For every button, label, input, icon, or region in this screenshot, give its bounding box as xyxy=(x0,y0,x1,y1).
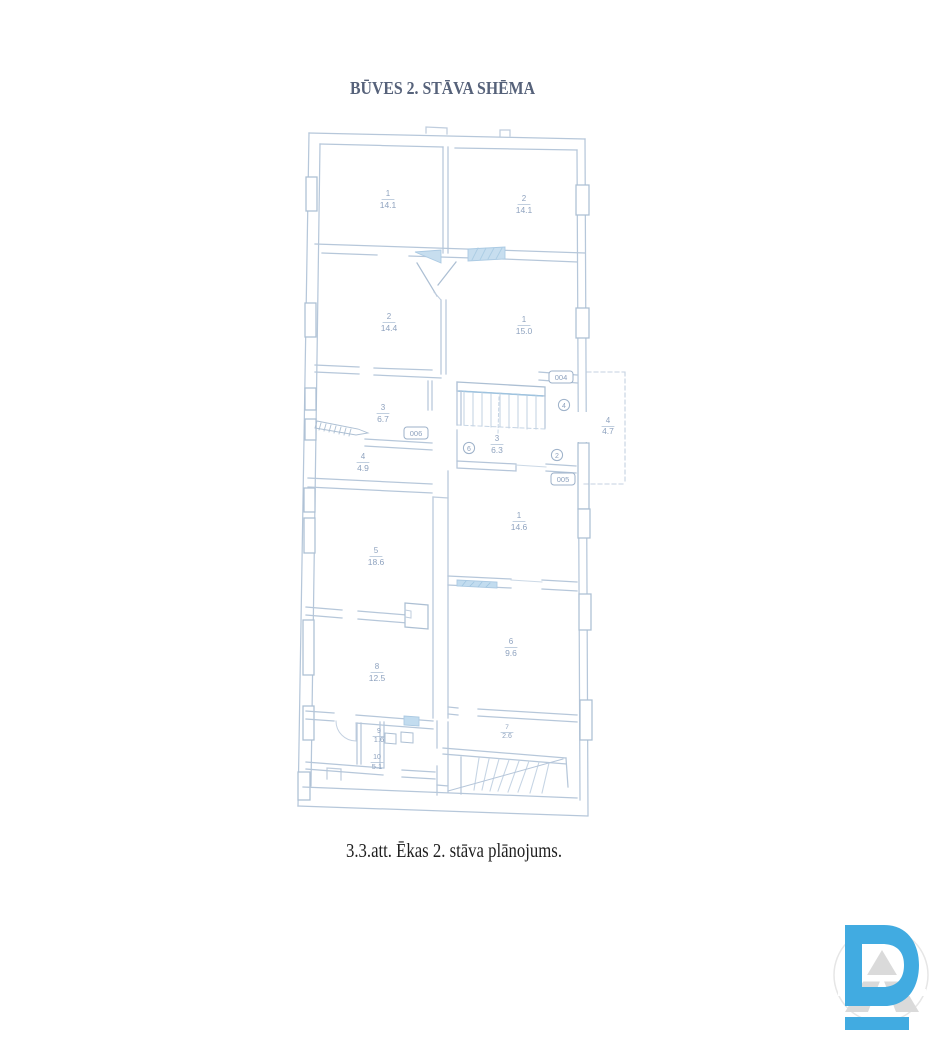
svg-text:1: 1 xyxy=(386,189,391,198)
svg-text:15.0: 15.0 xyxy=(516,326,533,336)
svg-text:10: 10 xyxy=(373,754,381,761)
svg-text:6.3: 6.3 xyxy=(491,445,503,455)
svg-text:3.3.att. Ēkas 2. stāva plānoju: 3.3.att. Ēkas 2. stāva plānojums. xyxy=(346,840,562,862)
svg-text:4: 4 xyxy=(606,416,611,425)
svg-text:18.6: 18.6 xyxy=(368,557,385,567)
svg-text:BŪVES 2. STĀVA SHĒMA: BŪVES 2. STĀVA SHĒMA xyxy=(350,78,535,98)
svg-text:005: 005 xyxy=(557,475,570,484)
svg-text:4.7: 4.7 xyxy=(602,426,614,436)
svg-text:8: 8 xyxy=(375,662,380,671)
svg-text:3: 3 xyxy=(381,403,386,412)
svg-text:5: 5 xyxy=(374,546,379,555)
svg-text:1: 1 xyxy=(517,511,522,520)
svg-text:4: 4 xyxy=(562,403,566,410)
svg-text:4: 4 xyxy=(361,452,366,461)
svg-text:14.4: 14.4 xyxy=(381,323,398,333)
svg-text:9.6: 9.6 xyxy=(505,648,517,658)
svg-text:2: 2 xyxy=(522,194,527,203)
svg-text:6: 6 xyxy=(467,446,471,453)
svg-text:006: 006 xyxy=(410,429,423,438)
svg-text:1.6: 1.6 xyxy=(374,735,384,744)
svg-text:3: 3 xyxy=(495,434,500,443)
svg-text:14.1: 14.1 xyxy=(380,200,397,210)
svg-text:9: 9 xyxy=(377,728,381,735)
svg-text:12.5: 12.5 xyxy=(369,673,386,683)
svg-text:7: 7 xyxy=(505,724,509,731)
svg-text:14.6: 14.6 xyxy=(511,522,528,532)
svg-text:1: 1 xyxy=(522,315,527,324)
svg-text:5.1: 5.1 xyxy=(372,762,382,771)
svg-text:2: 2 xyxy=(387,312,392,321)
svg-text:2.6: 2.6 xyxy=(502,733,512,740)
svg-text:004: 004 xyxy=(555,373,568,382)
svg-text:2: 2 xyxy=(555,453,559,460)
svg-text:6.7: 6.7 xyxy=(377,414,389,424)
svg-text:14.1: 14.1 xyxy=(516,205,533,215)
svg-text:4.9: 4.9 xyxy=(357,463,369,473)
svg-text:6: 6 xyxy=(509,637,514,646)
